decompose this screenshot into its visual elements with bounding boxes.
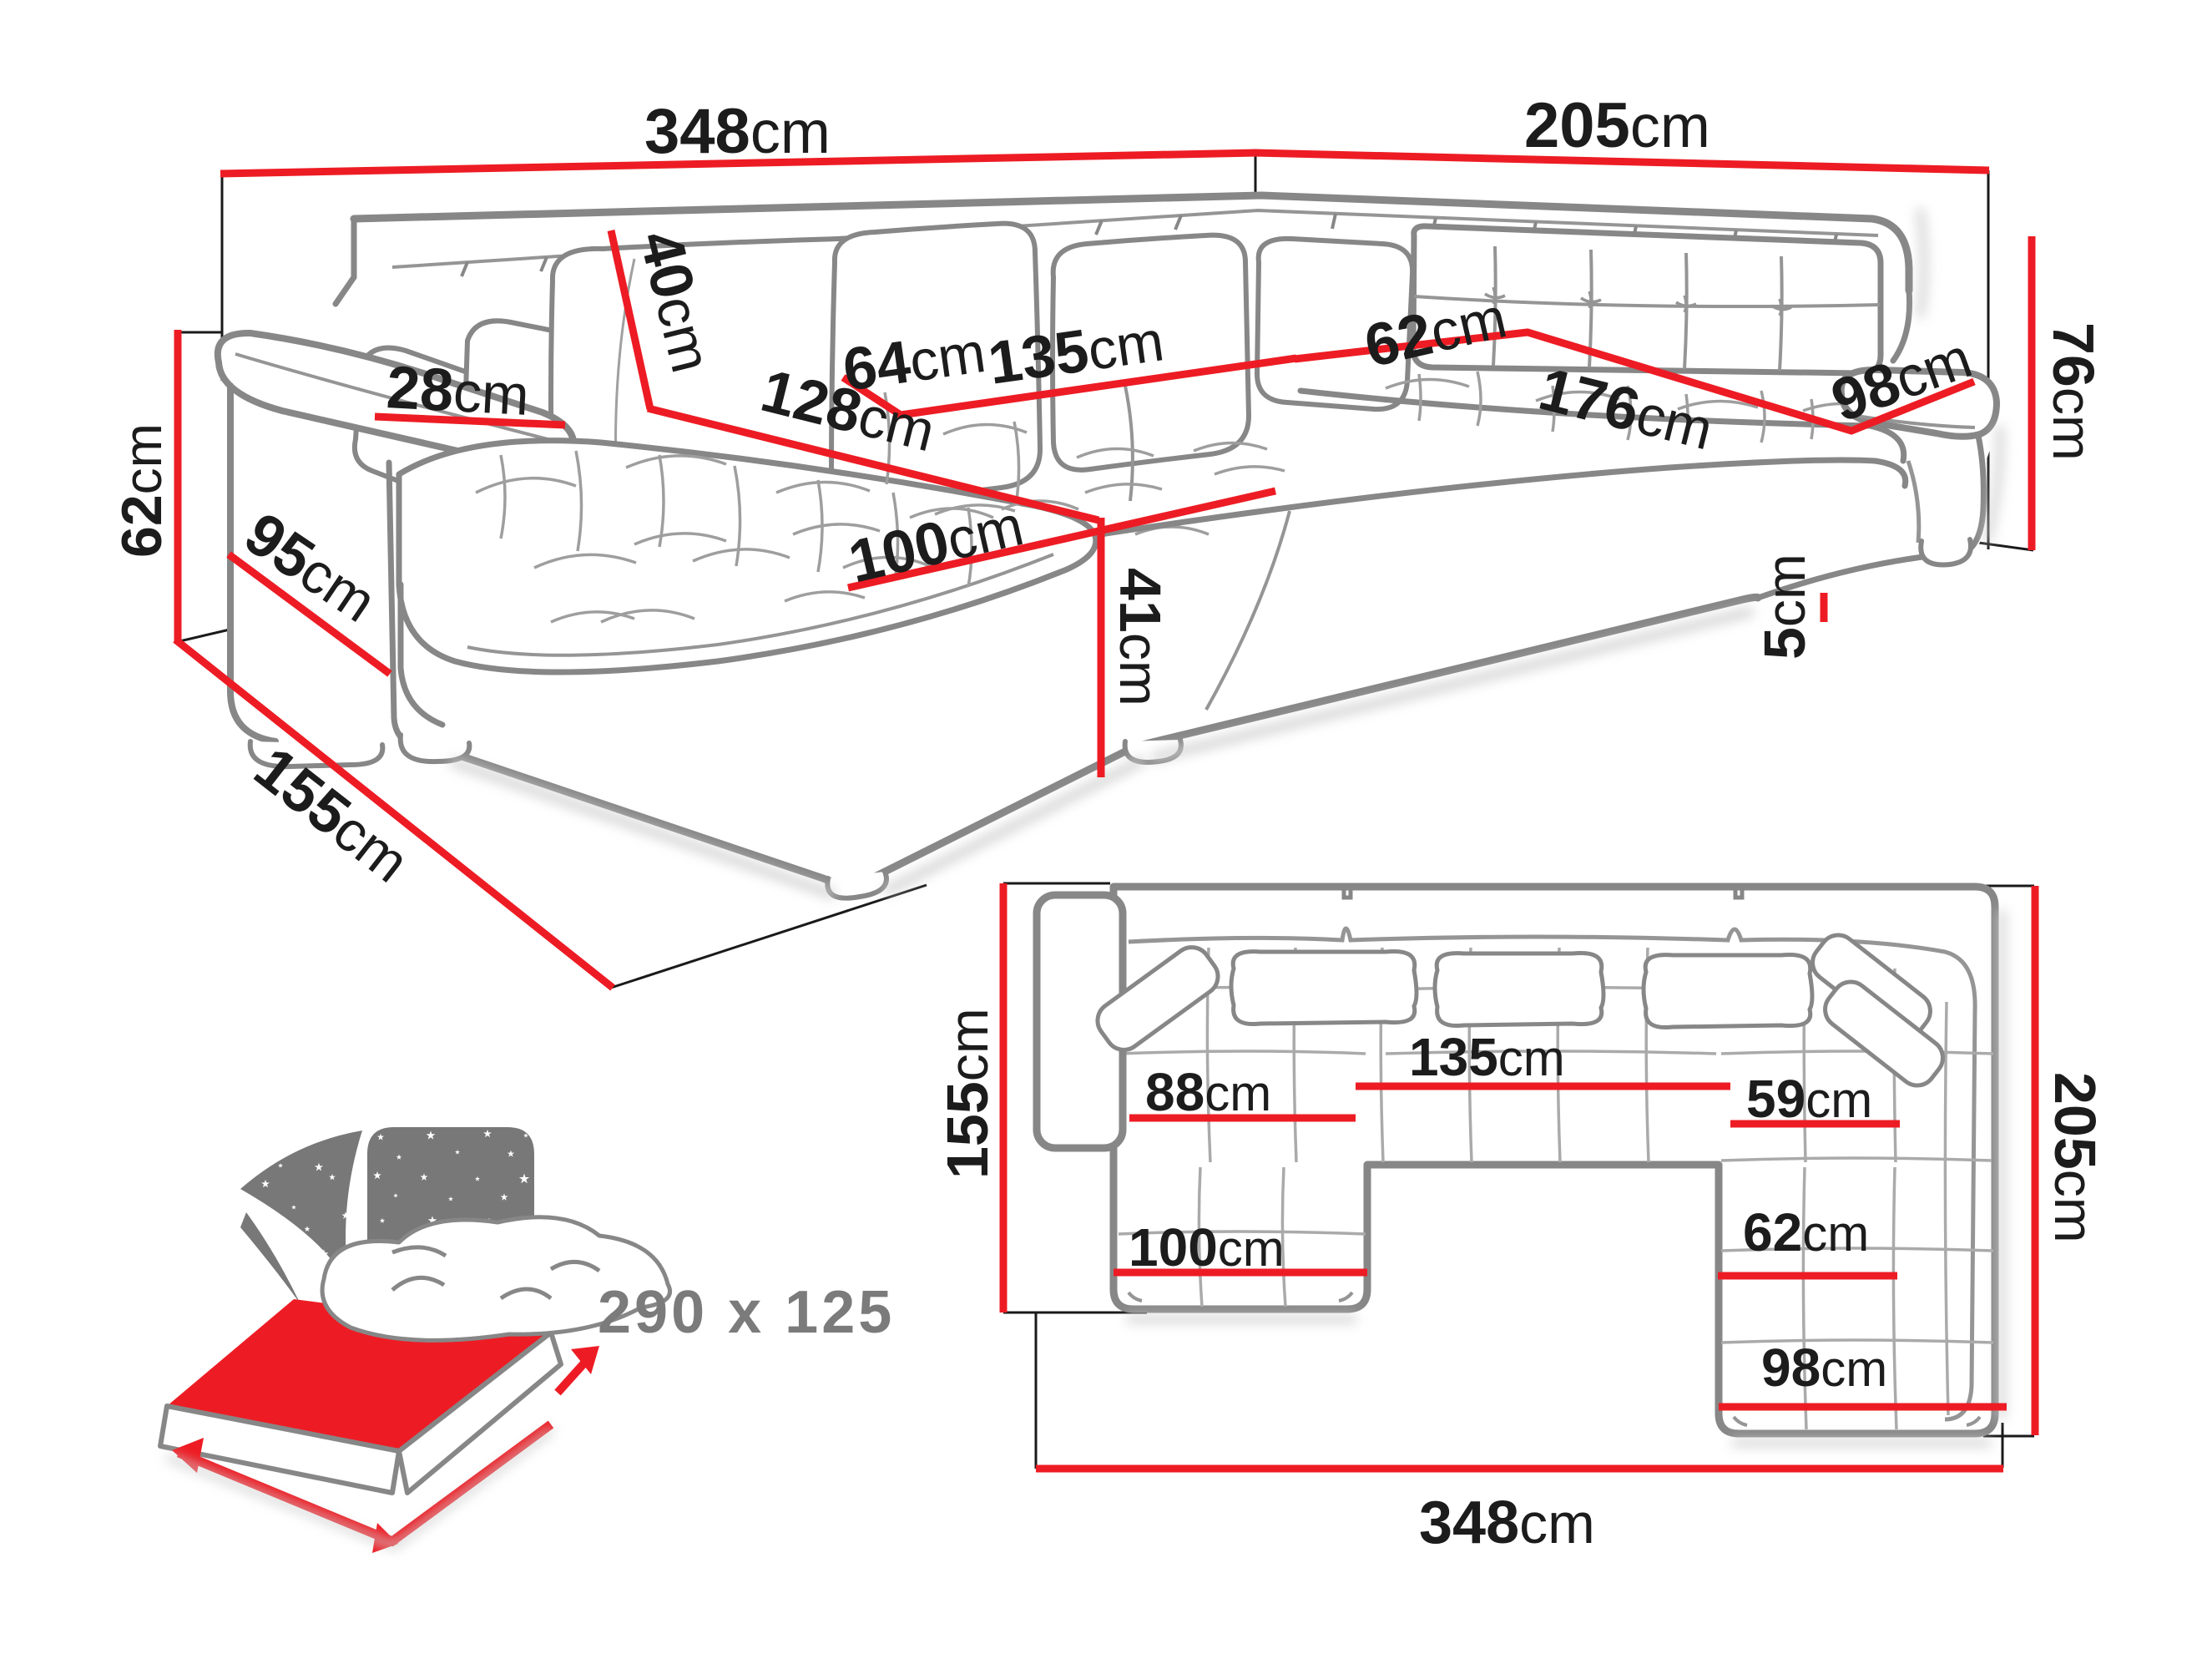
svg-text:62cm: 62cm [1743, 1202, 1869, 1262]
svg-text:205cm: 205cm [2043, 1072, 2108, 1243]
svg-text:88cm: 88cm [1145, 1062, 1271, 1122]
svg-text:155cm: 155cm [935, 1008, 1000, 1179]
svg-text:100cm: 100cm [1129, 1217, 1285, 1277]
svg-text:76cm: 76cm [2041, 322, 2106, 461]
svg-text:98cm: 98cm [1761, 1338, 1887, 1398]
svg-text:290 x 125: 290 x 125 [598, 1279, 895, 1346]
svg-text:62cm: 62cm [110, 423, 174, 558]
svg-text:348cm: 348cm [644, 96, 831, 167]
svg-text:28cm: 28cm [385, 354, 531, 428]
svg-text:41cm: 41cm [1108, 568, 1173, 706]
svg-text:205cm: 205cm [1524, 90, 1710, 161]
svg-text:135cm: 135cm [1409, 1027, 1565, 1087]
svg-text:59cm: 59cm [1746, 1069, 1872, 1129]
svg-text:5cm: 5cm [1752, 554, 1817, 660]
svg-text:348cm: 348cm [1419, 1490, 1595, 1556]
